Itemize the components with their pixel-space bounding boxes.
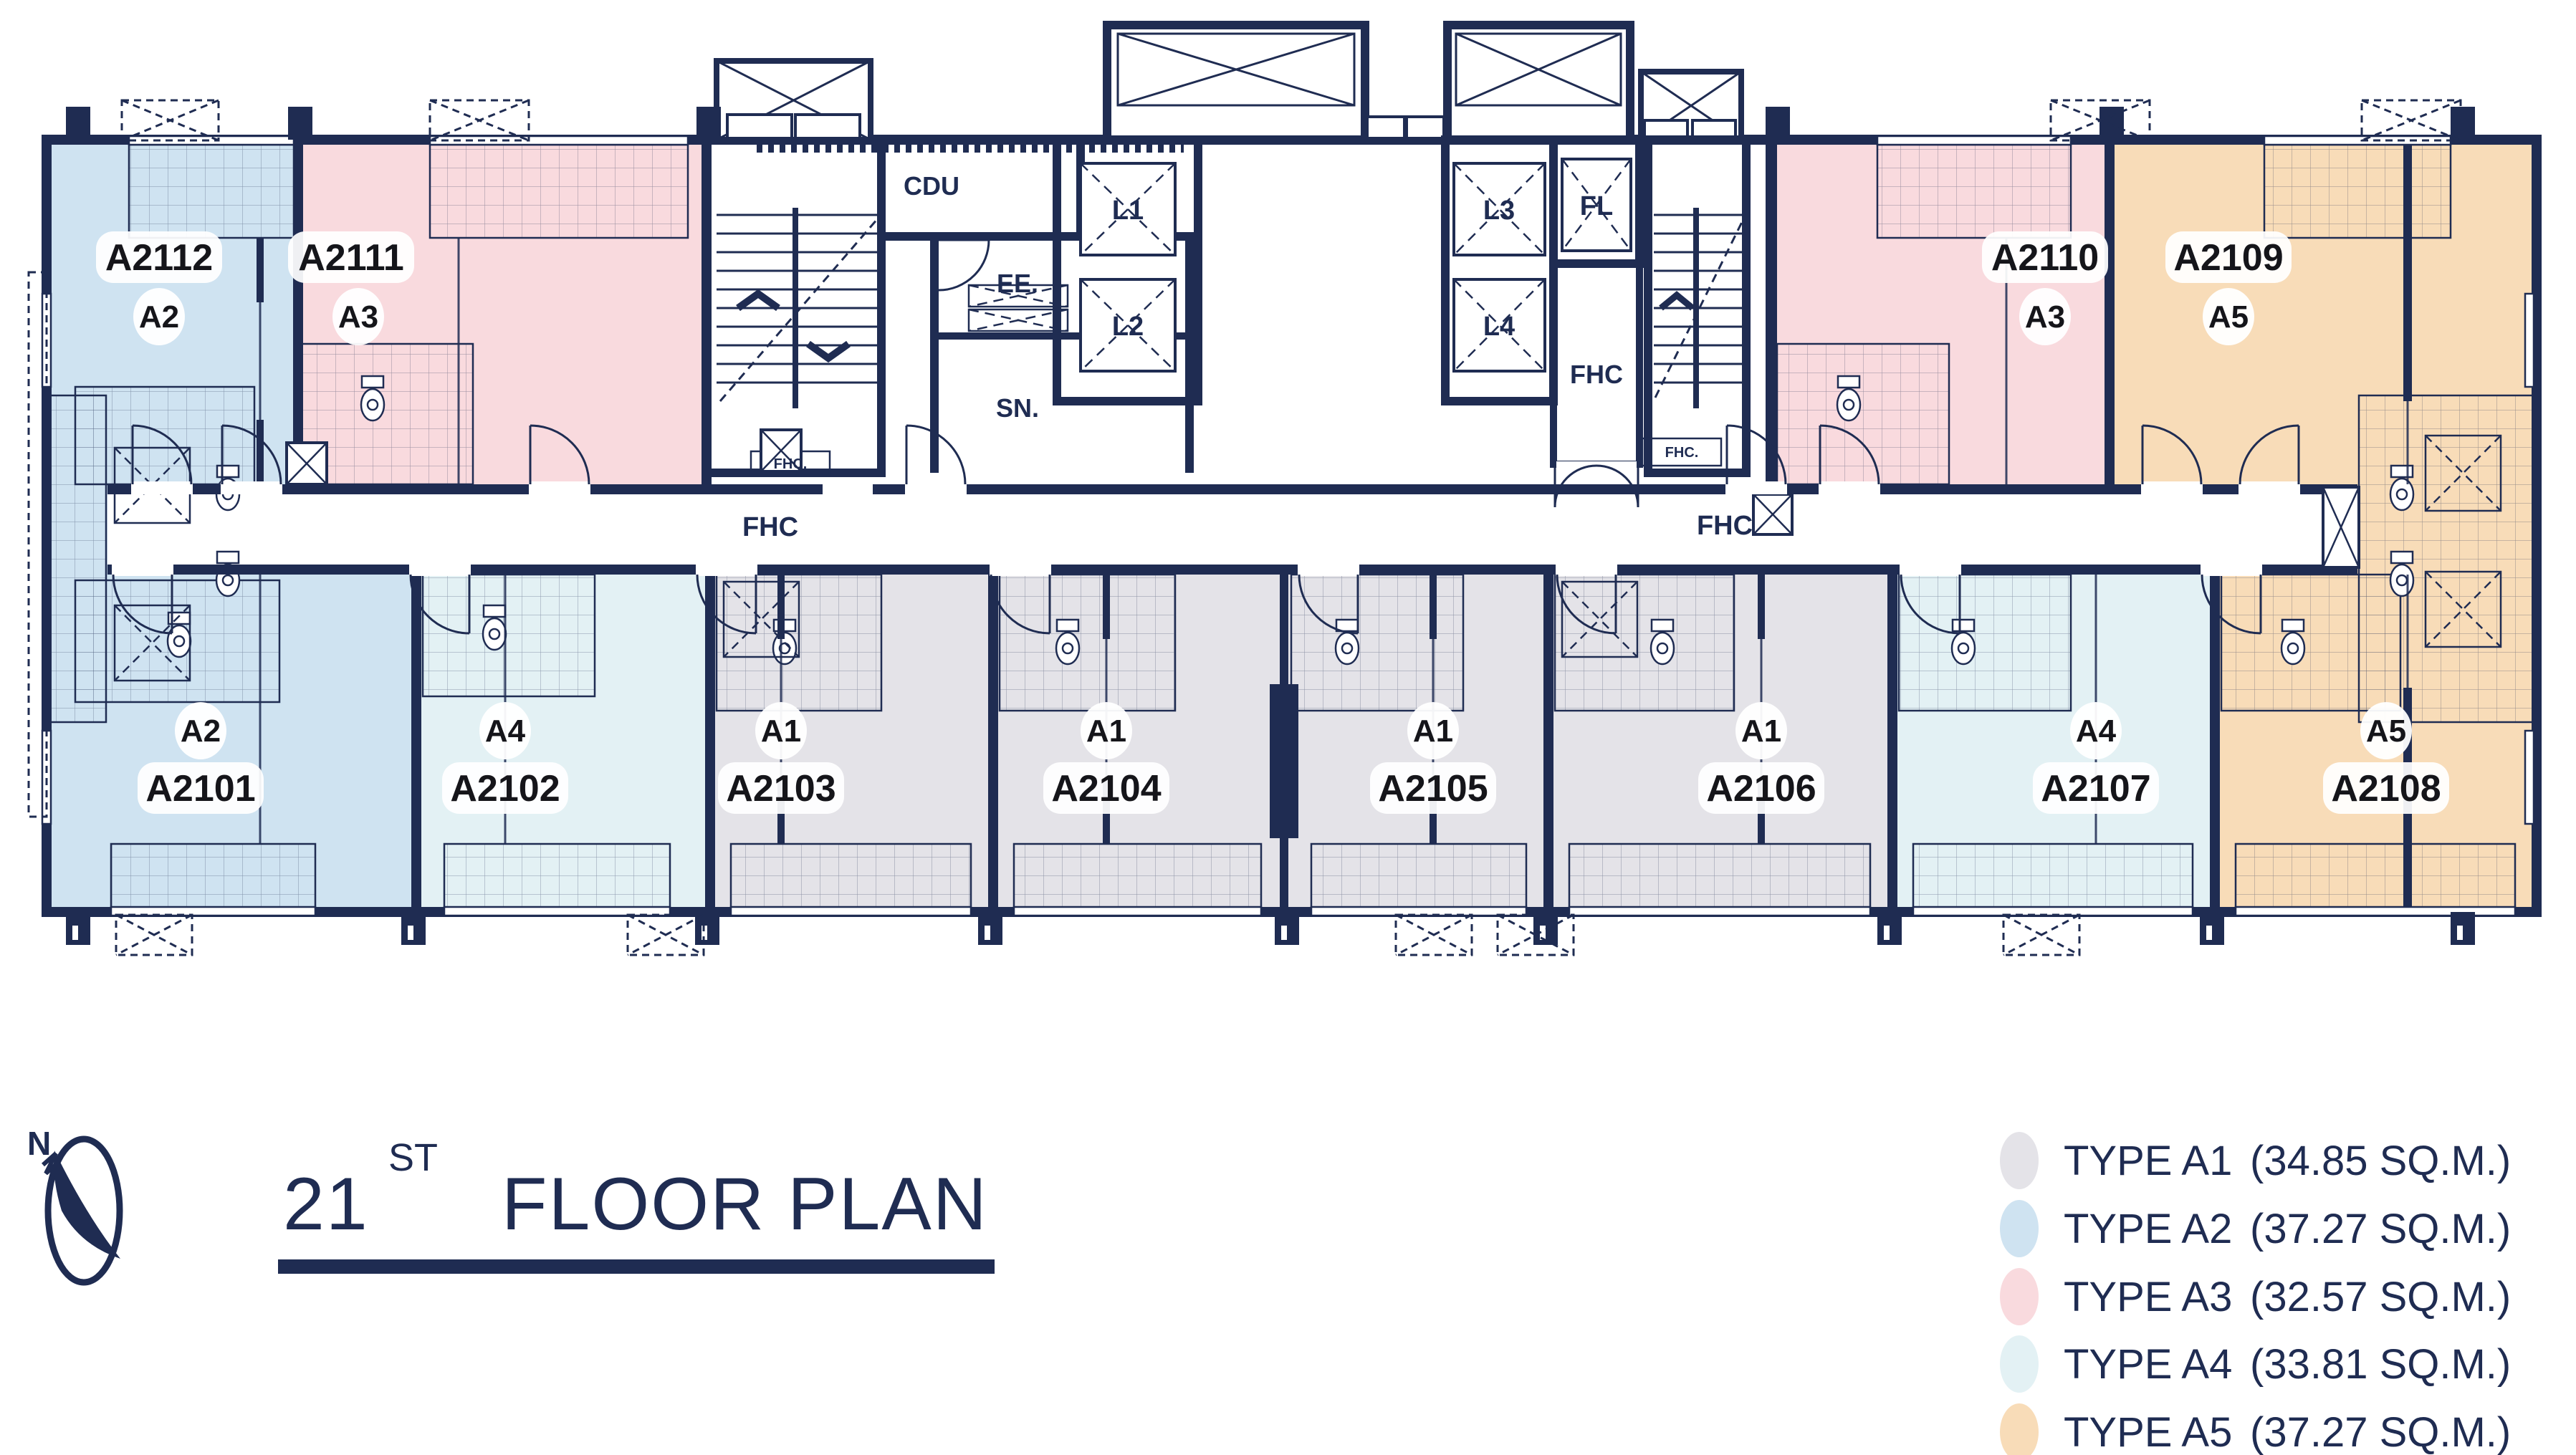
balcony	[430, 145, 688, 238]
page-title: FLOOR PLAN	[502, 1163, 988, 1246]
floor-plan-drawing: CDU EE. SN. L1 L2 L3 L4 FL FHC FHC. FHC.…	[0, 0, 2576, 1455]
floor-ordinal: ST	[388, 1136, 438, 1179]
room-label-sn: SN.	[996, 393, 1039, 423]
toilet-icon	[2390, 552, 2413, 596]
legend-area: (37.27 SQ.M.)	[2250, 1409, 2511, 1455]
bathroom	[1555, 575, 1734, 711]
legend-area: (33.81 SQ.M.)	[2250, 1341, 2511, 1388]
svg-text:A2106: A2106	[1706, 768, 1816, 810]
svg-text:A2112: A2112	[105, 237, 213, 279]
svg-text:A4: A4	[2076, 714, 2117, 749]
title-underline	[278, 1259, 995, 1274]
toilet-icon	[2281, 620, 2304, 664]
room-label-fhc: FHC	[1570, 360, 1623, 389]
toilet-icon	[483, 605, 506, 650]
legend-label: TYPE A3	[2064, 1274, 2232, 1320]
room-label-l1: L1	[1112, 196, 1144, 226]
toilet-icon	[1952, 620, 1975, 664]
svg-text:A1: A1	[1741, 714, 1781, 749]
svg-text:A2105: A2105	[1378, 768, 1488, 810]
legend-area: (34.85 SQ.M.)	[2250, 1138, 2511, 1184]
legend: TYPE A1 (34.85 SQ.M.) TYPE A2 (37.27 SQ.…	[2000, 1132, 2511, 1455]
balcony	[1311, 844, 1526, 910]
legend-item-a2: TYPE A2 (37.27 SQ.M.)	[2000, 1200, 2511, 1257]
room-label-l3: L3	[1483, 196, 1515, 226]
legend-swatch-a3	[2000, 1268, 2039, 1325]
bathroom-wing-right	[2359, 395, 2535, 722]
svg-text:A2104: A2104	[1051, 768, 1161, 810]
svg-text:A1: A1	[1086, 714, 1126, 749]
corridor-label-fhc-right: FHC	[1697, 511, 1753, 541]
svg-text:A2109: A2109	[2173, 237, 2283, 279]
legend-item-a1: TYPE A1 (34.85 SQ.M.)	[2000, 1132, 2511, 1189]
legend-label: TYPE A5	[2064, 1409, 2232, 1455]
toilet-icon	[2390, 466, 2413, 510]
legend-item-a3: TYPE A3 (32.57 SQ.M.)	[2000, 1268, 2511, 1325]
corridor-label-fhc-left: FHC	[742, 512, 798, 542]
svg-text:A2103: A2103	[726, 768, 835, 810]
svg-text:A2110: A2110	[1991, 237, 2099, 279]
balcony	[129, 145, 294, 238]
balcony	[2264, 145, 2451, 238]
balcony	[444, 844, 670, 910]
legend-swatch-a1	[2000, 1132, 2039, 1189]
balcony	[731, 844, 971, 910]
corridor	[107, 489, 2357, 568]
compass: N	[27, 1125, 120, 1282]
balcony	[1014, 844, 1261, 910]
toilet-icon	[1651, 620, 1674, 664]
svg-text:A1: A1	[1413, 714, 1453, 749]
svg-text:A3: A3	[2025, 299, 2065, 335]
balcony	[1569, 844, 1870, 910]
svg-text:A5: A5	[2366, 714, 2406, 749]
svg-text:A1: A1	[761, 714, 801, 749]
legend-item-a5: TYPE A5 (37.27 SQ.M.)	[2000, 1403, 2511, 1455]
toilet-icon	[1056, 620, 1079, 664]
svg-text:A2108: A2108	[2331, 768, 2441, 810]
svg-text:A2101: A2101	[145, 768, 255, 810]
legend-label: TYPE A1	[2064, 1138, 2232, 1184]
room-label-ee: EE.	[997, 269, 1038, 298]
svg-text:A2111: A2111	[298, 237, 404, 279]
svg-text:A4: A4	[485, 714, 526, 749]
bathroom	[1291, 575, 1463, 711]
legend-swatch-a2	[2000, 1200, 2039, 1257]
fhc-cabinet-label: FHC.	[1665, 445, 1699, 461]
svg-text:A2107: A2107	[2041, 768, 2150, 810]
bathroom	[1899, 575, 2071, 711]
toilet-icon	[361, 376, 384, 421]
room-label-l4: L4	[1483, 312, 1515, 342]
svg-text:A5: A5	[2208, 299, 2249, 335]
svg-text:A2: A2	[139, 299, 179, 335]
legend-item-a4: TYPE A4 (33.81 SQ.M.)	[2000, 1335, 2511, 1393]
balcony	[111, 844, 315, 910]
floor-number: 21	[283, 1163, 369, 1246]
bathroom-wing-left	[48, 395, 106, 722]
room-label-cdu: CDU	[904, 171, 959, 201]
fhc-cabinet-label: FHC.	[774, 456, 808, 472]
legend-label: TYPE A4	[2064, 1341, 2232, 1388]
toilet-icon	[1837, 376, 1860, 421]
title-block: N 21 ST FLOOR PLAN	[27, 1125, 995, 1282]
balcony	[2236, 844, 2515, 910]
svg-text:A3: A3	[338, 299, 378, 335]
bathroom	[1777, 344, 1949, 484]
legend-label: TYPE A2	[2064, 1206, 2232, 1252]
balcony	[1877, 145, 2071, 238]
floor-plan-page: CDU EE. SN. L1 L2 L3 L4 FL FHC FHC. FHC.…	[0, 0, 2576, 1455]
legend-swatch-a4	[2000, 1335, 2039, 1393]
bathroom	[423, 575, 595, 696]
legend-area: (32.57 SQ.M.)	[2250, 1274, 2511, 1320]
toilet-icon	[1336, 620, 1359, 664]
svg-text:A2102: A2102	[450, 768, 560, 810]
corridor-wall-top	[107, 484, 2357, 494]
legend-swatch-a5	[2000, 1403, 2039, 1455]
room-label-fl: FL	[1580, 191, 1613, 221]
compass-north-label: N	[27, 1125, 51, 1162]
bathroom	[1000, 575, 1175, 711]
legend-area: (37.27 SQ.M.)	[2250, 1206, 2511, 1252]
svg-text:A2: A2	[181, 714, 221, 749]
balcony	[1913, 844, 2193, 910]
room-label-l2: L2	[1112, 312, 1144, 342]
